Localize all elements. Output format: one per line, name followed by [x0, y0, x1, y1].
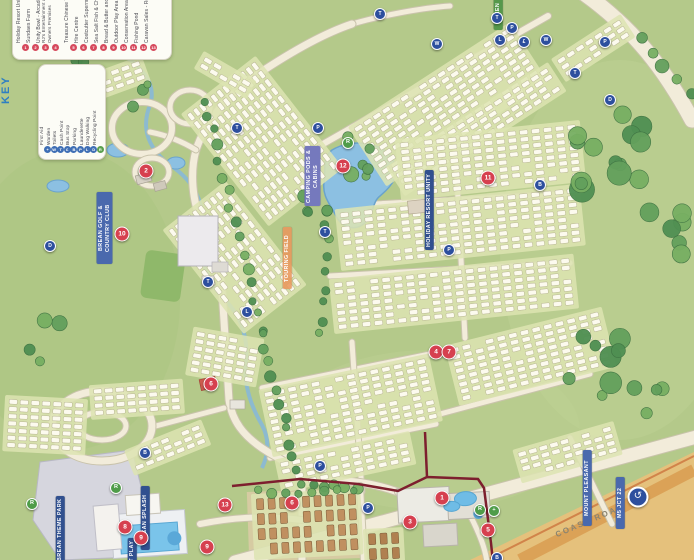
- key-item-label: Sundaes Farm: [26, 9, 32, 43]
- key-item-label: Caravan Sales - Reception: [144, 0, 150, 43]
- map-marker-facility-10: 10: [115, 227, 130, 242]
- resort-map: Holiday Resort Unity 1Sundaes Farm 2Unit…: [0, 0, 694, 560]
- map-marker-recycling: R: [26, 498, 38, 510]
- map-marker-facility-6: 6: [204, 377, 219, 392]
- map-marker-service: D: [604, 94, 616, 106]
- key-item-icon: R: [97, 146, 104, 153]
- map-marker-facility-9: 9: [200, 540, 215, 555]
- map-marker-service: P: [362, 502, 374, 514]
- key-item-label: Toilets: [53, 131, 58, 145]
- key-item-number-badge: 3: [42, 44, 49, 51]
- map-marker-service: B: [139, 447, 151, 459]
- key-item-number-badge: 1: [22, 44, 29, 51]
- key-item-number-badge: 5: [70, 44, 77, 51]
- map-marker-service: P: [506, 22, 518, 34]
- key-item-label: Costcutter Supermarket: [84, 0, 90, 43]
- key-item-label: Recycling Point: [93, 110, 98, 145]
- key-item-number-badge: 7: [90, 44, 97, 51]
- key-item-number-badge: 12: [140, 44, 147, 51]
- place-label: BREAN THEME PARK: [56, 496, 65, 560]
- place-label: TOURING FIELD: [283, 227, 292, 289]
- map-marker-service: L: [241, 306, 253, 318]
- key-box-facilities: Holiday Resort Unity 1Sundaes Farm 2Unit…: [12, 0, 172, 60]
- map-marker-facility-2: 2: [139, 164, 154, 179]
- map-marker-service: T: [231, 122, 243, 134]
- key-box-services: First Aid +Warden WToilets TCash Point £…: [38, 64, 106, 160]
- map-overlay: Holiday Resort Unity 1Sundaes Farm 2Unit…: [0, 0, 694, 560]
- map-marker-service: D: [44, 240, 56, 252]
- map-marker-service: P: [599, 36, 611, 48]
- map-marker-facility-12: 12: [336, 159, 351, 174]
- key-item-facility: Caravan Sales - Reception 13: [149, 0, 159, 59]
- key-item-label: RJ's Entertainment and Owners Premises: [41, 0, 52, 43]
- place-label: HOLIDAY RESORT UNITY: [425, 170, 434, 250]
- place-label: MOUNT PLEASANT: [583, 450, 592, 526]
- place-label: BREAN GOLF & COUNTRY CLUB: [97, 192, 113, 264]
- key-item-label: Hire Centre: [74, 16, 80, 43]
- key-item-label: Conservation Area: [124, 0, 130, 43]
- key-item-label: Outdoor Play Area: [114, 0, 120, 43]
- map-marker-service: T: [374, 8, 386, 20]
- place-label: CAMPING PODS & CABINS: [305, 146, 321, 206]
- map-marker-facility-5: 5: [481, 523, 496, 538]
- map-marker-facility-13: 13: [218, 498, 233, 513]
- map-marker-service: T: [319, 226, 331, 238]
- map-marker-facility-6: 6: [285, 496, 300, 511]
- map-marker-service: T: [491, 12, 503, 24]
- key-item-number-badge: 4: [52, 44, 59, 51]
- map-marker-service: P: [312, 122, 324, 134]
- map-marker-service: B: [534, 179, 546, 191]
- key-item-number-badge: 9: [110, 44, 117, 51]
- map-marker-service: T: [202, 276, 214, 288]
- map-marker-facility-1: 1: [435, 491, 450, 506]
- key-item-number-badge: 13: [150, 44, 157, 51]
- key-title: KEY: [0, 70, 12, 104]
- key-item-label: Sea Salt Fish & Chips: [94, 0, 100, 43]
- map-marker-recycling: +: [488, 505, 500, 517]
- map-marker-service: P: [314, 460, 326, 472]
- map-marker-facility-3: 3: [403, 515, 418, 530]
- map-marker-recycling: R: [474, 504, 486, 516]
- key-item-number-badge: 8: [100, 44, 107, 51]
- key-item-label: Launderette: [80, 118, 85, 145]
- map-marker-service: T: [569, 67, 581, 79]
- key-item-service: Recycling Point R: [97, 65, 107, 159]
- map-marker-facility-11: 11: [481, 171, 496, 186]
- map-marker-facility-9: 9: [134, 531, 149, 546]
- key-item-label: Warden: [47, 128, 52, 145]
- key-item-label: Treasure Chinese Takeaway: [64, 0, 70, 43]
- key-item-number-badge: 6: [80, 44, 87, 51]
- key-item-label: Cash Point: [60, 121, 65, 145]
- key-item-number-badge: 10: [120, 44, 127, 51]
- map-marker-service: £: [518, 36, 530, 48]
- key-item-label: Parking: [73, 128, 78, 145]
- map-marker-service: W: [431, 38, 443, 50]
- map-marker-recycling: R: [110, 482, 122, 494]
- roundabout-icon: ↺: [628, 487, 649, 508]
- map-marker-service: P: [443, 244, 455, 256]
- key-item-label: Fishing Pond: [134, 13, 140, 43]
- map-marker-facility-7: 7: [442, 345, 457, 360]
- place-label: M5 JCT 22: [616, 477, 625, 529]
- map-marker-recycling: R: [342, 137, 354, 149]
- map-marker-service: B: [491, 552, 503, 560]
- key-item-label: First Aid: [40, 127, 45, 145]
- map-marker-facility-8: 8: [118, 520, 133, 535]
- key-item-facility: RJ's Entertainment and Owners Premises 4: [51, 0, 61, 59]
- key-item-label: Dog Walking: [86, 117, 91, 145]
- key-item-number-badge: 2: [32, 44, 39, 51]
- key-item-label: Bus Stop: [66, 125, 71, 145]
- key-item-number-badge: 11: [130, 44, 137, 51]
- key-item-label: Bread & Butter and Bakery: [104, 0, 110, 43]
- map-marker-service: L: [494, 34, 506, 46]
- map-marker-service: W: [540, 34, 552, 46]
- key-item-label: Holiday Resort Unity: [16, 0, 22, 43]
